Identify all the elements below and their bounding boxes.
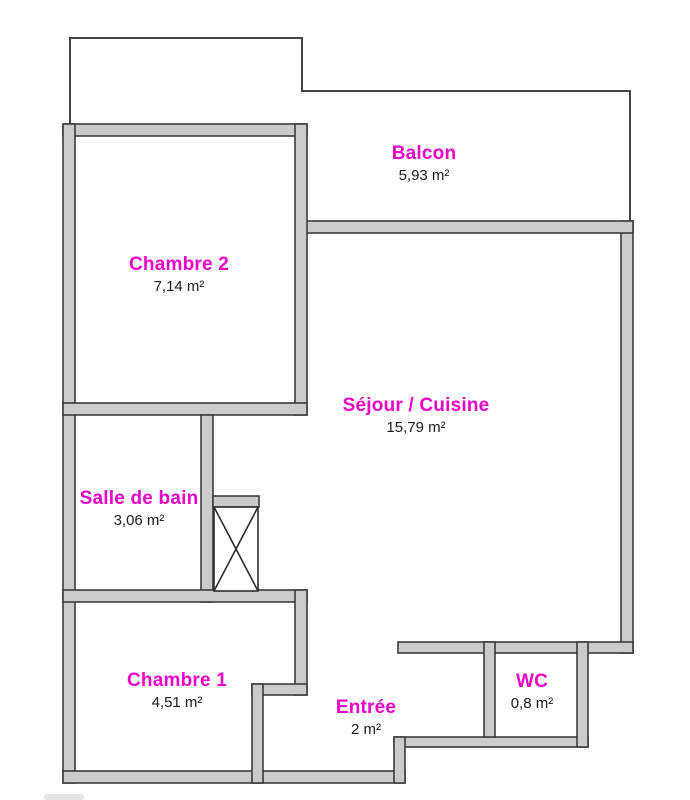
wall-entree-bottom [394, 737, 588, 747]
wall-wc-right [577, 642, 588, 747]
wall-chambre1-right [295, 590, 307, 695]
floor-plan: Balcon 5,93 m² Chambre 2 7,14 m² Séjour … [0, 0, 690, 800]
walls [63, 124, 633, 783]
wall-sdb-right [201, 415, 213, 602]
wall-chambre1-top [63, 590, 307, 602]
scan-artifact [44, 794, 84, 800]
wall-balcon-divider [300, 221, 633, 233]
wall-entree-step [394, 737, 405, 783]
wall-outer-left [63, 124, 75, 783]
wall-chambre2-top [63, 124, 307, 136]
shaft-symbol [214, 507, 258, 591]
floor-plan-drawing [0, 0, 690, 800]
wall-outer-bottom [63, 771, 405, 783]
wall-entree-left [252, 684, 263, 783]
wall-outer-right [621, 221, 633, 653]
wall-chambre2-right [295, 124, 307, 415]
wall-shaft-top [213, 496, 259, 507]
wall-sdb-top [63, 403, 307, 415]
wall-wc-left [484, 642, 495, 737]
wall-sejour-divider [398, 642, 633, 653]
